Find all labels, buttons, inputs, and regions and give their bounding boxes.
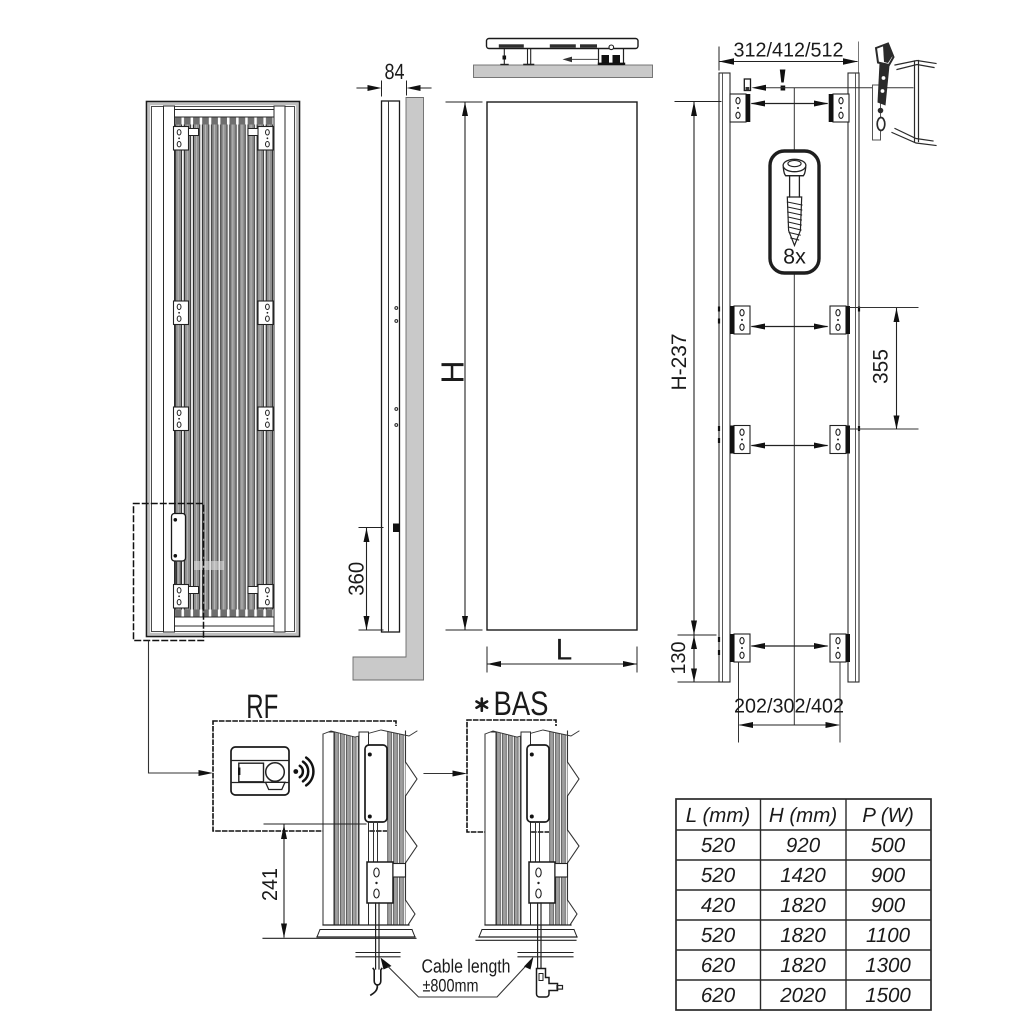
svg-text:241: 241 bbox=[258, 868, 282, 901]
svg-text:1100: 1100 bbox=[866, 924, 911, 947]
svg-text:900: 900 bbox=[871, 864, 906, 887]
svg-text:500: 500 bbox=[871, 834, 906, 857]
svg-text:520: 520 bbox=[701, 864, 736, 887]
svg-text:8x: 8x bbox=[783, 245, 806, 269]
svg-text:420: 420 bbox=[701, 894, 736, 917]
svg-text:P (W): P (W) bbox=[862, 804, 914, 827]
svg-text:1820: 1820 bbox=[780, 924, 826, 947]
svg-text:H (mm): H (mm) bbox=[769, 804, 837, 827]
svg-text:355: 355 bbox=[870, 349, 893, 384]
svg-text:920: 920 bbox=[786, 834, 821, 857]
svg-text:L: L bbox=[556, 634, 573, 667]
svg-text:1420: 1420 bbox=[780, 864, 826, 887]
svg-text:H: H bbox=[434, 360, 470, 383]
svg-text:H-237: H-237 bbox=[668, 334, 691, 391]
svg-text:900: 900 bbox=[871, 894, 906, 917]
svg-text:520: 520 bbox=[701, 834, 736, 857]
svg-text:520: 520 bbox=[701, 924, 736, 947]
svg-text:1500: 1500 bbox=[865, 984, 911, 1007]
svg-text:±800mm: ±800mm bbox=[423, 976, 479, 996]
svg-text:L (mm): L (mm) bbox=[686, 804, 751, 827]
svg-text:360: 360 bbox=[345, 562, 369, 596]
svg-text:1300: 1300 bbox=[865, 954, 911, 977]
svg-text:84: 84 bbox=[385, 59, 405, 84]
svg-text:620: 620 bbox=[701, 954, 736, 977]
svg-text:620: 620 bbox=[701, 984, 736, 1007]
svg-text:BAS: BAS bbox=[494, 685, 549, 723]
svg-text:1820: 1820 bbox=[780, 894, 826, 917]
svg-text:2020: 2020 bbox=[779, 984, 826, 1007]
svg-text:202/302/402: 202/302/402 bbox=[734, 696, 844, 718]
svg-text:312/412/512: 312/412/512 bbox=[734, 40, 844, 62]
svg-text:130: 130 bbox=[668, 642, 690, 675]
svg-text:Cable length: Cable length bbox=[422, 957, 511, 978]
svg-text:1820: 1820 bbox=[780, 954, 826, 977]
